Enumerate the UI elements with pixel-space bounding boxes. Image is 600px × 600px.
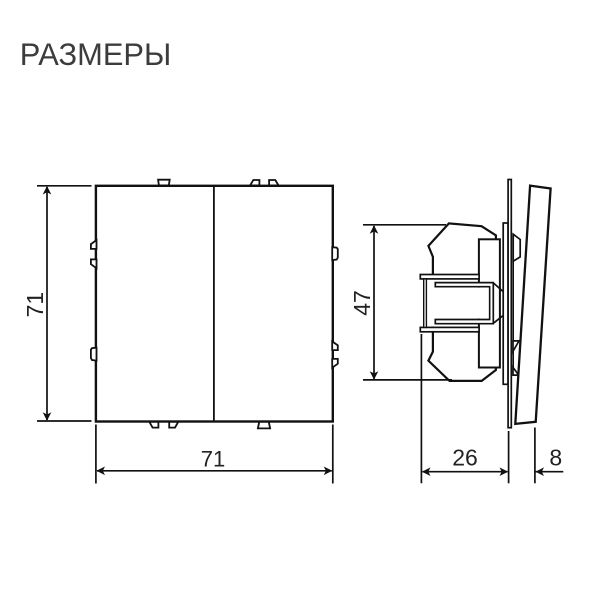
svg-text:26: 26 [452,444,478,470]
svg-text:8: 8 [549,444,562,470]
svg-text:47: 47 [349,290,375,316]
svg-text:РАЗМЕРЫ: РАЗМЕРЫ [20,36,172,72]
svg-text:71: 71 [22,292,48,318]
svg-text:71: 71 [201,446,225,471]
